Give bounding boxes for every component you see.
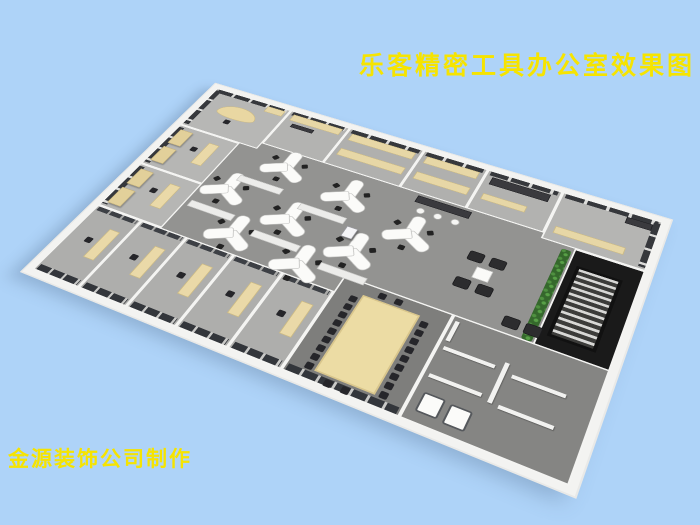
- ydesk-chair: [393, 219, 402, 225]
- ydesk-chair: [216, 243, 225, 249]
- ydesk-arm: [268, 258, 300, 271]
- ydesk-chair: [302, 165, 308, 169]
- ydesk-chair: [334, 206, 343, 212]
- ydesk-chair: [369, 248, 376, 253]
- ydesk-chair: [397, 244, 406, 250]
- coffee-table: [471, 266, 493, 282]
- ydesk-chair: [213, 176, 221, 182]
- ydesk-chair: [272, 155, 280, 160]
- ydesk-arm: [320, 191, 350, 202]
- bar-stool: [449, 218, 461, 226]
- ydesk-chair: [427, 231, 434, 236]
- ydesk-chair: [304, 216, 311, 221]
- ydesk-chair: [273, 229, 282, 235]
- ydesk-arm: [199, 184, 229, 195]
- ydesk-arm: [259, 163, 288, 173]
- ydesk-chair: [272, 176, 281, 181]
- page-title: 乐客精密工具办公室效果图: [359, 46, 695, 82]
- ydesk-chair: [282, 275, 291, 282]
- lounge-armchair: [451, 276, 472, 291]
- ydesk-chair: [332, 183, 341, 189]
- office-floorplan-3d-render: [22, 84, 671, 497]
- ydesk-chair: [273, 205, 282, 211]
- ydesk-chair: [364, 193, 371, 198]
- waiting-armchair: [500, 315, 521, 331]
- ydesk-arm: [381, 228, 413, 240]
- canvas-background: 乐客精密工具办公室效果图 金源装饰公司制作: [0, 0, 700, 525]
- ydesk-chair: [211, 198, 220, 204]
- ydesk-chair: [243, 186, 249, 190]
- lounge-armchair: [466, 250, 486, 264]
- lounge-armchair: [488, 257, 508, 271]
- lounge-armchair: [474, 283, 495, 298]
- ydesk-arm: [203, 227, 234, 239]
- credit-text: 金源装饰公司制作: [8, 443, 192, 473]
